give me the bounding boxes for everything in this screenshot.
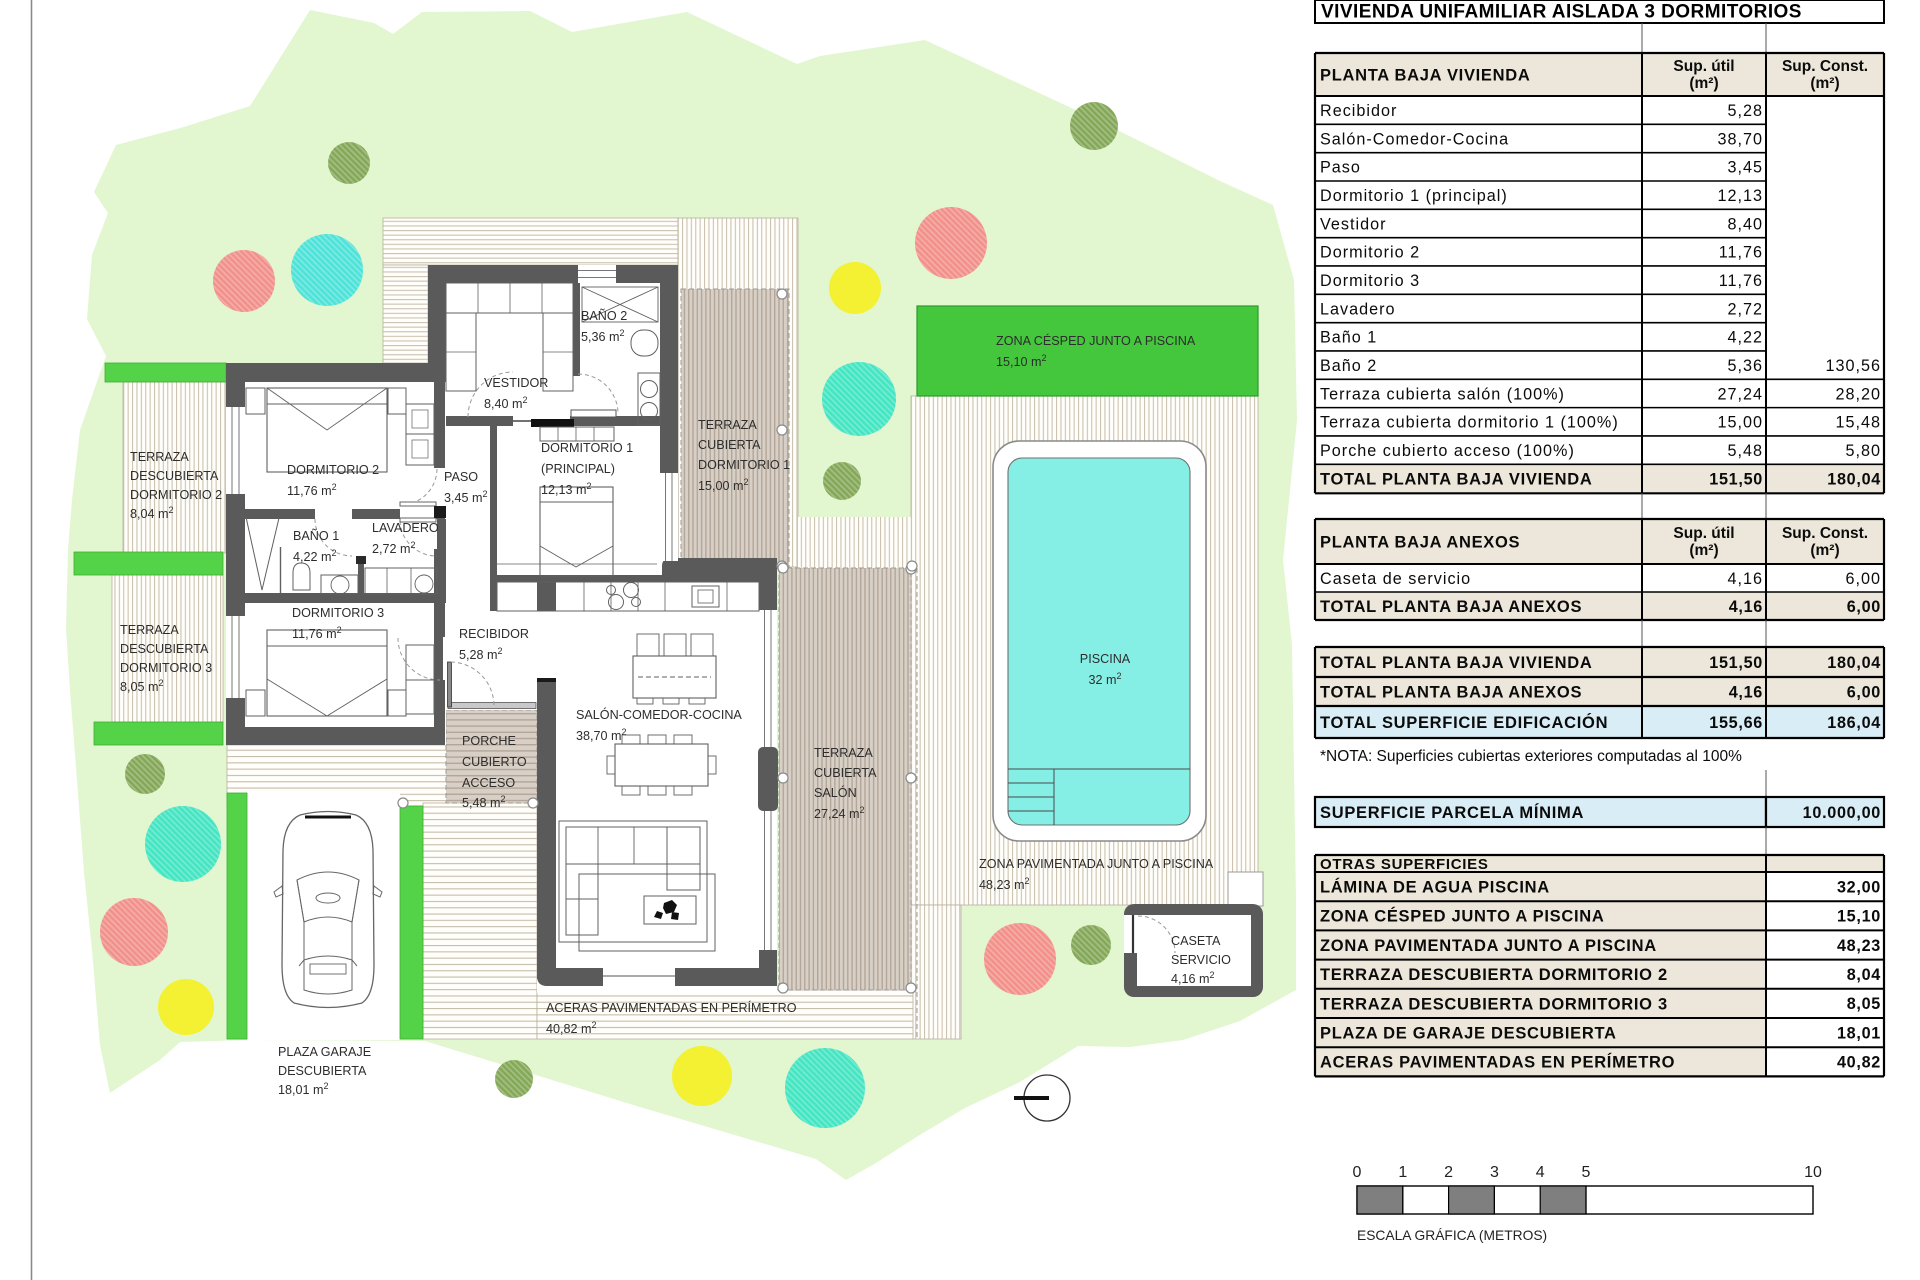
svg-text:(PRINCIPAL): (PRINCIPAL) bbox=[541, 462, 615, 476]
svg-text:Sup. Const.: Sup. Const. bbox=[1782, 525, 1868, 542]
svg-text:Paso: Paso bbox=[1320, 159, 1361, 177]
svg-text:0: 0 bbox=[1353, 1164, 1362, 1181]
svg-text:Dormitorio 3: Dormitorio 3 bbox=[1320, 272, 1420, 290]
svg-text:11,76 m2: 11,76 m2 bbox=[287, 482, 337, 498]
svg-text:PISCINA: PISCINA bbox=[1080, 652, 1131, 666]
svg-text:TERRAZA: TERRAZA bbox=[814, 746, 873, 760]
svg-text:DORMITORIO 3: DORMITORIO 3 bbox=[292, 606, 384, 620]
svg-text:15,48: 15,48 bbox=[1835, 414, 1881, 432]
svg-text:8,40: 8,40 bbox=[1727, 215, 1763, 233]
svg-text:RECIBIDOR: RECIBIDOR bbox=[459, 627, 529, 641]
svg-text:DESCUBIERTA: DESCUBIERTA bbox=[278, 1064, 367, 1078]
svg-text:PORCHE: PORCHE bbox=[462, 734, 516, 748]
svg-text:CUBIERTA: CUBIERTA bbox=[814, 766, 877, 780]
svg-text:15,00: 15,00 bbox=[1717, 414, 1763, 432]
svg-text:Vestidor: Vestidor bbox=[1320, 215, 1387, 233]
svg-text:180,04: 180,04 bbox=[1827, 471, 1881, 489]
svg-text:Dormitorio 2: Dormitorio 2 bbox=[1320, 244, 1420, 262]
svg-text:5: 5 bbox=[1582, 1164, 1591, 1181]
svg-text:10: 10 bbox=[1804, 1164, 1822, 1181]
svg-text:4,16: 4,16 bbox=[1727, 570, 1763, 588]
svg-text:8,04 m2: 8,04 m2 bbox=[130, 505, 174, 521]
svg-text:27,24: 27,24 bbox=[1717, 385, 1763, 403]
svg-text:27,24 m2: 27,24 m2 bbox=[814, 805, 865, 821]
svg-text:3,45 m2: 3,45 m2 bbox=[444, 489, 488, 505]
svg-text:15,10: 15,10 bbox=[1837, 908, 1881, 926]
svg-text:6,00: 6,00 bbox=[1845, 570, 1881, 588]
svg-text:40,82: 40,82 bbox=[1837, 1054, 1881, 1072]
svg-text:28,20: 28,20 bbox=[1835, 385, 1881, 403]
svg-text:ZONA PAVIMENTADA JUNTO A PISCI: ZONA PAVIMENTADA JUNTO A PISCINA bbox=[979, 857, 1214, 871]
svg-text:ACERAS PAVIMENTADAS EN PERÍMET: ACERAS PAVIMENTADAS EN PERÍMETRO bbox=[1320, 1053, 1675, 1072]
svg-text:VESTIDOR: VESTIDOR bbox=[484, 376, 548, 390]
svg-text:CUBIERTO: CUBIERTO bbox=[462, 755, 527, 769]
svg-text:PLANTA BAJA ANEXOS: PLANTA BAJA ANEXOS bbox=[1320, 533, 1520, 551]
svg-text:32,00: 32,00 bbox=[1837, 878, 1881, 896]
svg-text:DORMITORIO 1: DORMITORIO 1 bbox=[698, 458, 790, 472]
svg-text:DORMITORIO 1: DORMITORIO 1 bbox=[541, 441, 633, 455]
svg-text:5,28: 5,28 bbox=[1727, 102, 1763, 120]
svg-text:5,36 m2: 5,36 m2 bbox=[581, 328, 625, 344]
svg-text:TOTAL PLANTA BAJA ANEXOS: TOTAL PLANTA BAJA ANEXOS bbox=[1320, 598, 1582, 616]
svg-text:5,28 m2: 5,28 m2 bbox=[459, 646, 503, 662]
svg-text:DESCUBIERTA: DESCUBIERTA bbox=[120, 642, 209, 656]
svg-text:BAÑO 2: BAÑO 2 bbox=[581, 309, 627, 323]
svg-text:DORMITORIO 2: DORMITORIO 2 bbox=[287, 463, 379, 477]
svg-text:ZONA CÉSPED JUNTO A PISCINA: ZONA CÉSPED JUNTO A PISCINA bbox=[1320, 907, 1604, 926]
svg-text:VIVIENDA UNIFAMILIAR AISLADA 3: VIVIENDA UNIFAMILIAR AISLADA 3 DORMITORI… bbox=[1321, 2, 1802, 23]
svg-text:180,04: 180,04 bbox=[1827, 654, 1881, 672]
svg-text:11,76 m2: 11,76 m2 bbox=[292, 625, 342, 641]
svg-text:(m²): (m²) bbox=[1689, 542, 1718, 559]
svg-text:8,40 m2: 8,40 m2 bbox=[484, 395, 528, 411]
svg-text:4,22: 4,22 bbox=[1727, 329, 1763, 347]
svg-text:3,45: 3,45 bbox=[1727, 159, 1763, 177]
svg-text:Lavadero: Lavadero bbox=[1320, 300, 1396, 318]
svg-text:151,50: 151,50 bbox=[1709, 654, 1763, 672]
svg-text:5,48 m2: 5,48 m2 bbox=[462, 794, 506, 810]
svg-text:4,16: 4,16 bbox=[1729, 598, 1763, 616]
svg-text:38,70 m2: 38,70 m2 bbox=[576, 727, 627, 743]
svg-text:(m²): (m²) bbox=[1810, 75, 1839, 92]
svg-text:PLAZA DE GARAJE DESCUBIERTA: PLAZA DE GARAJE DESCUBIERTA bbox=[1320, 1025, 1617, 1043]
svg-text:11,76: 11,76 bbox=[1719, 244, 1763, 262]
svg-text:DORMITORIO 3: DORMITORIO 3 bbox=[120, 661, 212, 675]
svg-text:SERVICIO: SERVICIO bbox=[1171, 953, 1231, 967]
svg-text:ACCESO: ACCESO bbox=[462, 776, 515, 790]
svg-text:5,80: 5,80 bbox=[1845, 442, 1881, 460]
svg-text:TERRAZA DESCUBIERTA DORMITORIO: TERRAZA DESCUBIERTA DORMITORIO 3 bbox=[1320, 995, 1668, 1013]
svg-text:5,48: 5,48 bbox=[1727, 442, 1763, 460]
svg-text:2: 2 bbox=[1444, 1164, 1453, 1181]
svg-text:DORMITORIO 2: DORMITORIO 2 bbox=[130, 488, 222, 502]
svg-text:186,04: 186,04 bbox=[1827, 714, 1881, 732]
svg-text:Baño 2: Baño 2 bbox=[1320, 357, 1377, 375]
svg-text:10.000,00: 10.000,00 bbox=[1803, 804, 1881, 822]
svg-text:Porche cubierto acceso (100%): Porche cubierto acceso (100%) bbox=[1320, 442, 1575, 460]
svg-text:TOTAL SUPERFICIE EDIFICACIÓN: TOTAL SUPERFICIE EDIFICACIÓN bbox=[1320, 713, 1608, 732]
svg-text:18,01 m2: 18,01 m2 bbox=[278, 1081, 329, 1097]
svg-text:TOTAL PLANTA BAJA VIVIENDA: TOTAL PLANTA BAJA VIVIENDA bbox=[1320, 471, 1592, 489]
svg-text:Dormitorio 1 (principal): Dormitorio 1 (principal) bbox=[1320, 187, 1508, 205]
svg-text:155,66: 155,66 bbox=[1709, 714, 1763, 732]
svg-text:48,23: 48,23 bbox=[1837, 937, 1881, 955]
svg-text:TERRAZA: TERRAZA bbox=[130, 450, 189, 464]
svg-text:8,05: 8,05 bbox=[1847, 995, 1881, 1013]
svg-text:Sup. Const.: Sup. Const. bbox=[1782, 58, 1868, 75]
svg-text:CUBIERTA: CUBIERTA bbox=[698, 438, 761, 452]
svg-text:SALÓN-COMEDOR-COCINA: SALÓN-COMEDOR-COCINA bbox=[576, 707, 742, 722]
svg-text:5,36: 5,36 bbox=[1727, 357, 1763, 375]
svg-text:PLAZA GARAJE: PLAZA GARAJE bbox=[278, 1045, 371, 1059]
svg-text:11,76: 11,76 bbox=[1719, 272, 1763, 290]
svg-text:CASETA: CASETA bbox=[1171, 934, 1221, 948]
svg-text:TOTAL PLANTA BAJA VIVIENDA: TOTAL PLANTA BAJA VIVIENDA bbox=[1320, 654, 1592, 672]
svg-text:4: 4 bbox=[1536, 1164, 1545, 1181]
svg-text:ESCALA GRÁFICA (METROS): ESCALA GRÁFICA (METROS) bbox=[1357, 1227, 1547, 1243]
svg-text:151,50: 151,50 bbox=[1709, 471, 1763, 489]
svg-text:LAVADERO: LAVADERO bbox=[372, 521, 439, 535]
svg-text:3: 3 bbox=[1490, 1164, 1499, 1181]
svg-text:4,22 m2: 4,22 m2 bbox=[293, 548, 337, 564]
svg-text:12,13: 12,13 bbox=[1717, 187, 1763, 205]
svg-text:8,05 m2: 8,05 m2 bbox=[120, 678, 164, 694]
svg-text:Caseta de servicio: Caseta de servicio bbox=[1320, 570, 1471, 588]
svg-text:TERRAZA: TERRAZA bbox=[698, 418, 757, 432]
svg-text:BAÑO 1: BAÑO 1 bbox=[293, 529, 339, 543]
svg-text:18,01: 18,01 bbox=[1837, 1024, 1881, 1042]
svg-text:ZONA PAVIMENTADA JUNTO A PISCI: ZONA PAVIMENTADA JUNTO A PISCINA bbox=[1320, 937, 1657, 955]
svg-text:Terraza cubierta dormitorio 1: Terraza cubierta dormitorio 1 (100%) bbox=[1320, 414, 1619, 432]
svg-text:130,56: 130,56 bbox=[1825, 357, 1881, 375]
svg-text:OTRAS SUPERFICIES: OTRAS SUPERFICIES bbox=[1320, 856, 1489, 873]
svg-text:PLANTA BAJA VIVIENDA: PLANTA BAJA VIVIENDA bbox=[1320, 66, 1531, 84]
svg-text:TERRAZA: TERRAZA bbox=[120, 623, 179, 637]
svg-text:SALÓN: SALÓN bbox=[814, 785, 857, 800]
svg-text:40,82 m2: 40,82 m2 bbox=[546, 1020, 597, 1036]
svg-text:1: 1 bbox=[1398, 1164, 1407, 1181]
svg-text:SUPERFICIE PARCELA MÍNIMA: SUPERFICIE PARCELA MÍNIMA bbox=[1320, 803, 1584, 822]
svg-text:PASO: PASO bbox=[444, 470, 478, 484]
svg-text:DESCUBIERTA: DESCUBIERTA bbox=[130, 469, 219, 483]
svg-text:TOTAL PLANTA BAJA ANEXOS: TOTAL PLANTA BAJA ANEXOS bbox=[1320, 683, 1582, 701]
svg-text:48,23 m2: 48,23 m2 bbox=[979, 876, 1030, 892]
svg-text:12,13 m2: 12,13 m2 bbox=[541, 481, 592, 497]
svg-text:Recibidor: Recibidor bbox=[1320, 102, 1397, 120]
svg-text:4,16 m2: 4,16 m2 bbox=[1171, 970, 1215, 986]
svg-text:Sup. útil: Sup. útil bbox=[1673, 525, 1734, 542]
svg-text:2,72: 2,72 bbox=[1727, 300, 1763, 318]
svg-text:8,04: 8,04 bbox=[1847, 966, 1881, 984]
svg-text:ACERAS PAVIMENTADAS EN PERÍMET: ACERAS PAVIMENTADAS EN PERÍMETRO bbox=[546, 1000, 797, 1015]
svg-text:ZONA CÉSPED JUNTO A PISCINA: ZONA CÉSPED JUNTO A PISCINA bbox=[996, 333, 1196, 348]
svg-text:15,00 m2: 15,00 m2 bbox=[698, 477, 749, 493]
svg-text:(m²): (m²) bbox=[1810, 542, 1839, 559]
svg-text:Sup. útil: Sup. útil bbox=[1673, 58, 1734, 75]
svg-text:Baño 1: Baño 1 bbox=[1320, 329, 1377, 347]
svg-text:LÁMINA DE AGUA PISCINA: LÁMINA DE AGUA PISCINA bbox=[1320, 878, 1550, 897]
svg-text:15,10 m2: 15,10 m2 bbox=[996, 353, 1047, 369]
svg-text:4,16: 4,16 bbox=[1729, 683, 1763, 701]
svg-text:TERRAZA DESCUBIERTA DORMITORIO: TERRAZA DESCUBIERTA DORMITORIO 2 bbox=[1320, 966, 1668, 984]
svg-text:2,72 m2: 2,72 m2 bbox=[372, 540, 416, 556]
svg-text:Salón-Comedor-Cocina: Salón-Comedor-Cocina bbox=[1320, 130, 1509, 148]
svg-text:(m²): (m²) bbox=[1689, 75, 1718, 92]
svg-text:6,00: 6,00 bbox=[1847, 683, 1881, 701]
svg-text:38,70: 38,70 bbox=[1717, 130, 1763, 148]
svg-text:*NOTA: Superficies cubiertas e: *NOTA: Superficies cubiertas exteriores … bbox=[1320, 748, 1742, 765]
svg-text:Terraza cubierta salón (100%): Terraza cubierta salón (100%) bbox=[1320, 385, 1565, 403]
svg-text:6,00: 6,00 bbox=[1847, 598, 1881, 616]
